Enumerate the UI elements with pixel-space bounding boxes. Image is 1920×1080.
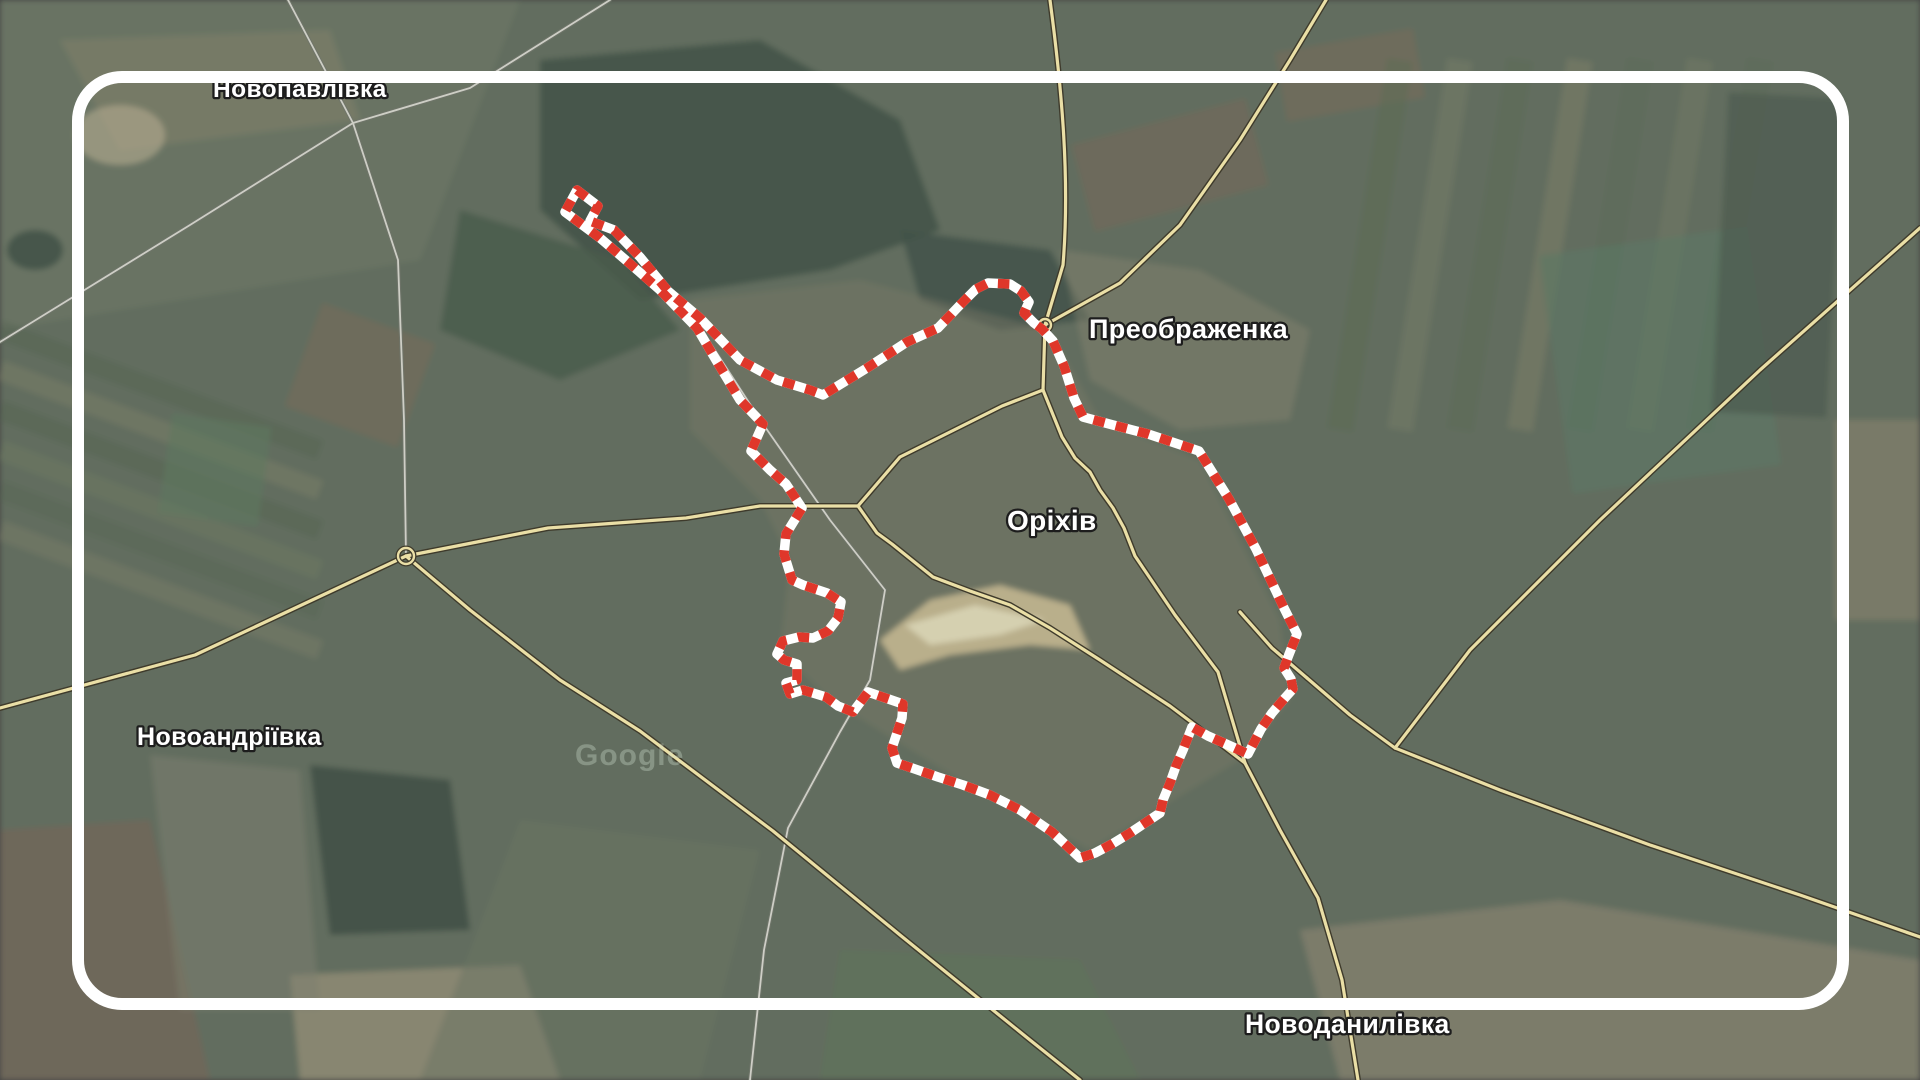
satellite-map-canvas[interactable]: Google Новопавлівка Преображенка Оріхів … xyxy=(0,0,1920,1080)
screenshot-root: Google Новопавлівка Преображенка Оріхів … xyxy=(0,0,1920,1080)
place-label-preobrazhenka: Преображенка xyxy=(1089,314,1289,344)
place-label-orikhiv: Оріхів xyxy=(1007,505,1097,536)
place-label-novoandriivka: Новоандріївка xyxy=(137,723,322,751)
place-label-novodanylivka: Новоданилівка xyxy=(1245,1009,1450,1039)
google-watermark: Google xyxy=(575,739,684,772)
